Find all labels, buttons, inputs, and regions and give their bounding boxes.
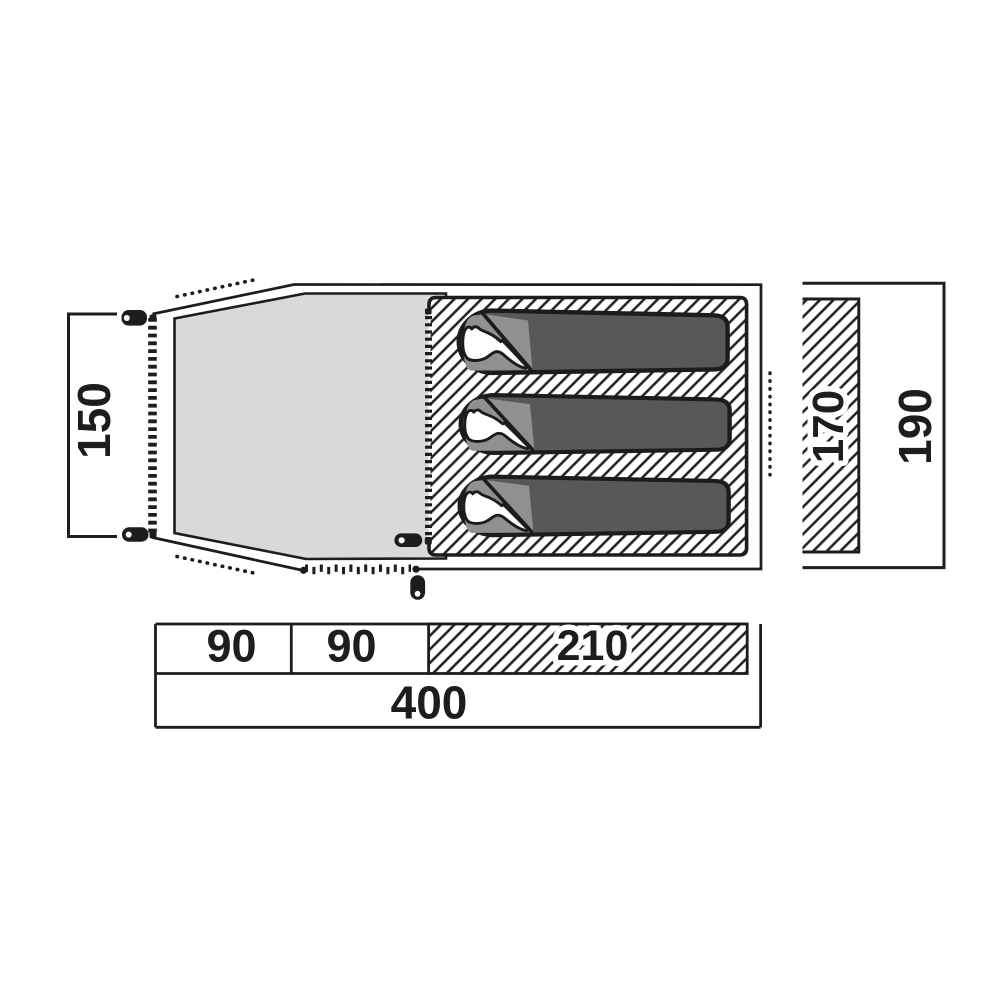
svg-text:190: 190 (889, 388, 941, 465)
svg-text:400: 400 (391, 677, 468, 729)
svg-text:170: 170 (804, 390, 853, 463)
svg-text:210: 210 (557, 622, 629, 670)
svg-text:150: 150 (68, 382, 120, 459)
svg-text:90: 90 (206, 621, 256, 672)
svg-text:90: 90 (326, 621, 376, 672)
